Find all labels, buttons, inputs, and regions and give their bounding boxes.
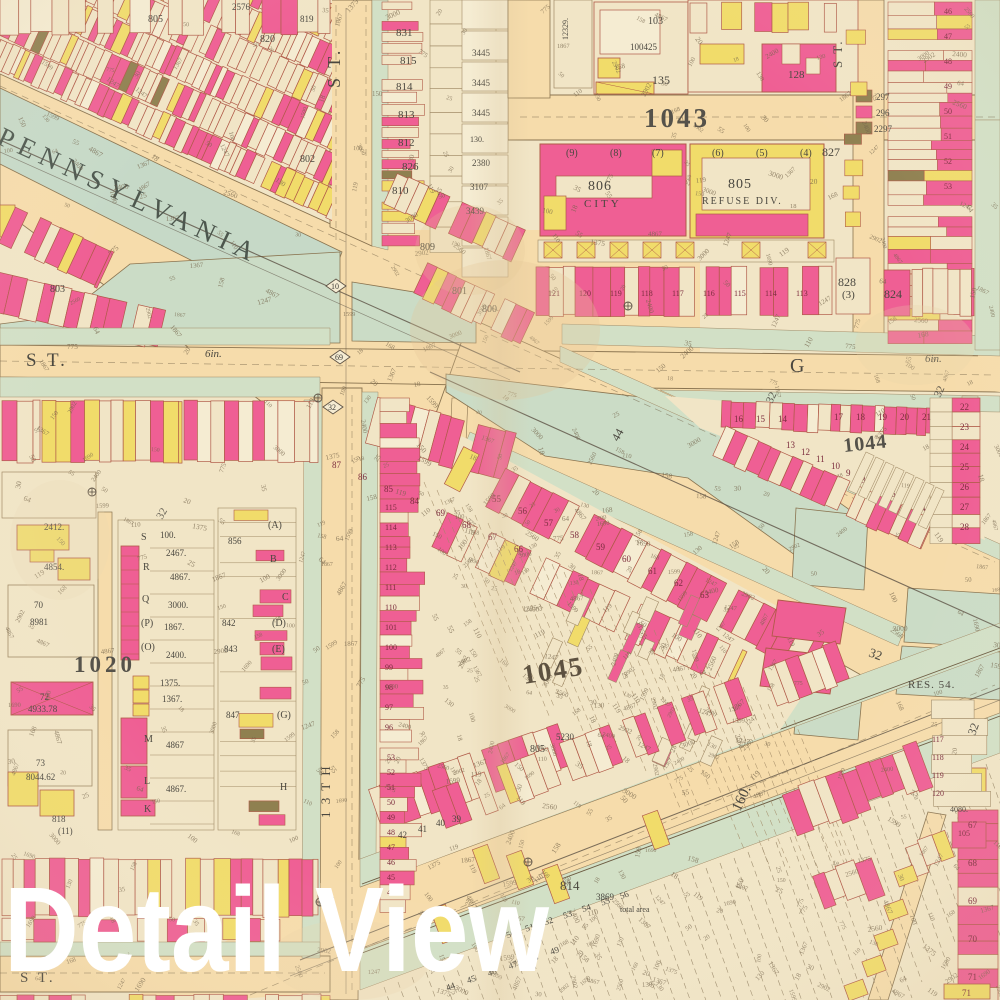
svg-text:Detail View: Detail View — [4, 861, 550, 997]
